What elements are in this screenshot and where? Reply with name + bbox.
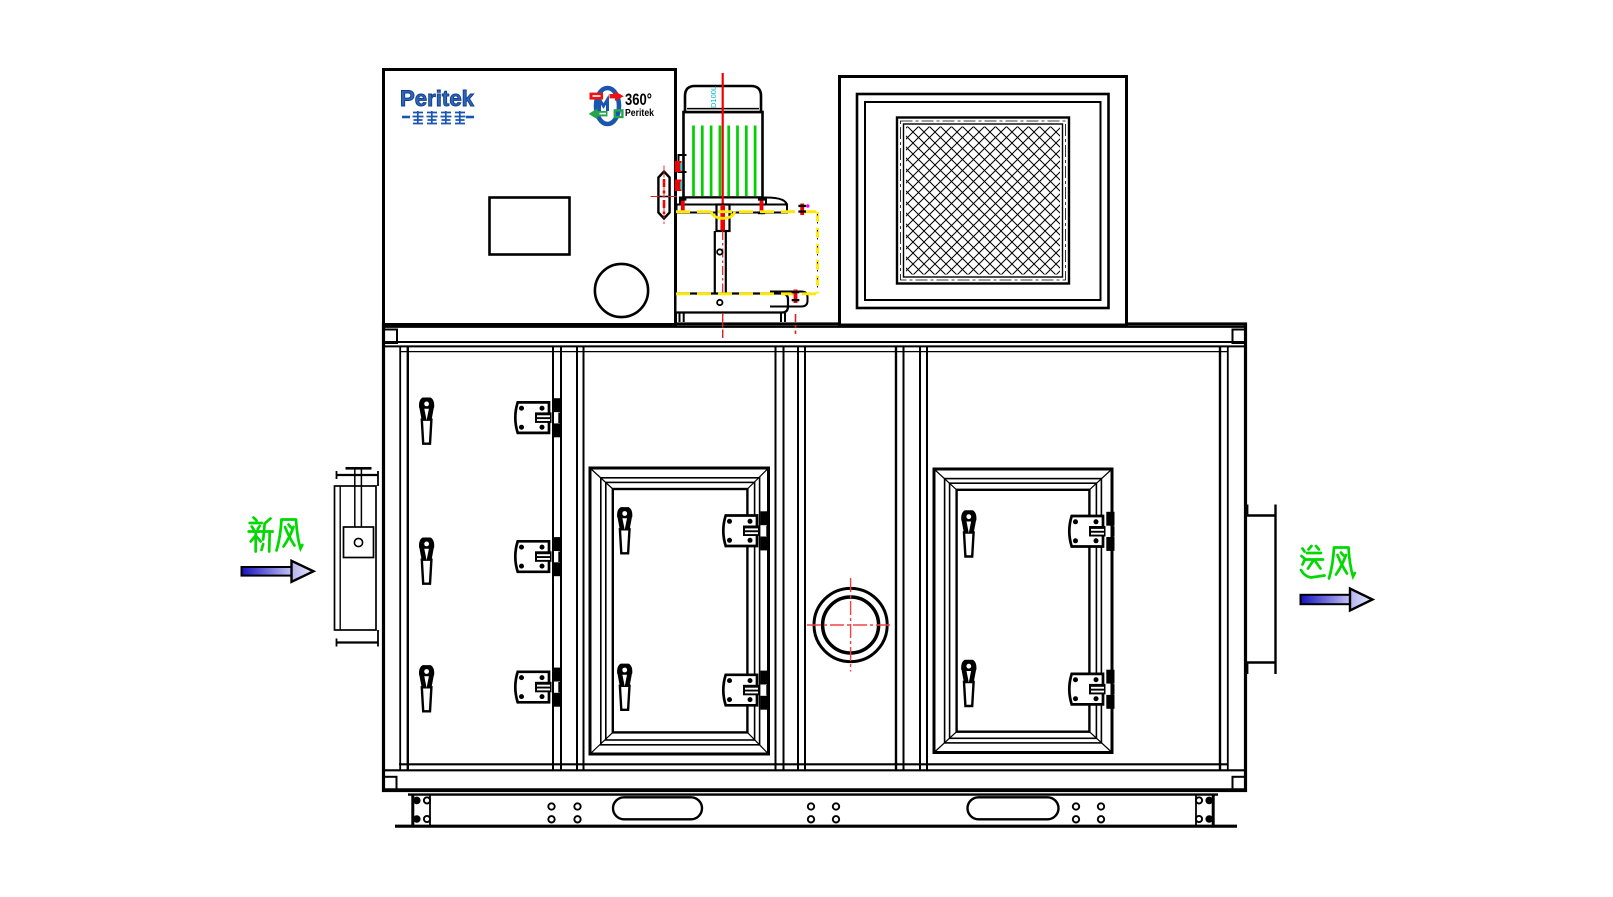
svg-text:360°: 360° — [625, 90, 652, 109]
svg-text:Peritek: Peritek — [400, 86, 475, 111]
svg-text:D100L: D100L — [709, 86, 718, 108]
svg-text:Peritek: Peritek — [625, 108, 654, 119]
